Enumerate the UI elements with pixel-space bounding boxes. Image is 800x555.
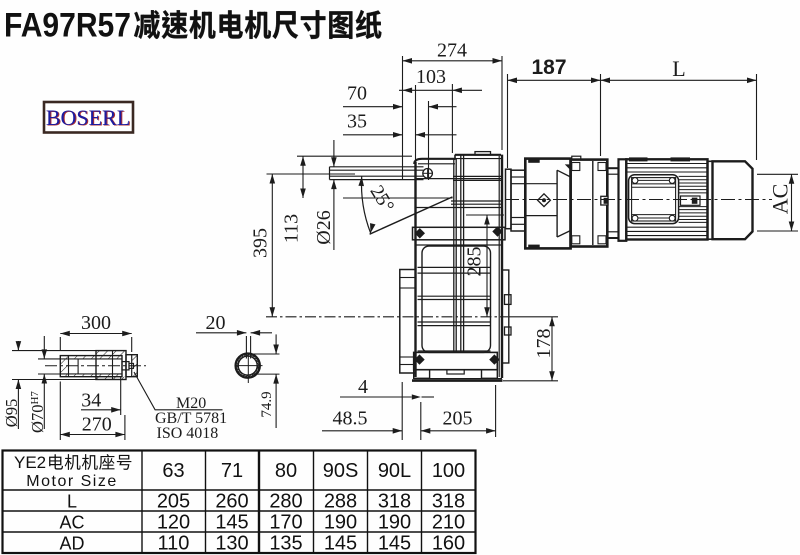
- svg-text:L: L: [67, 492, 77, 512]
- svg-text:35: 35: [347, 111, 367, 133]
- svg-text:190: 190: [378, 512, 411, 534]
- svg-text:YE2: YE2: [14, 453, 46, 472]
- svg-text:205: 205: [157, 491, 190, 513]
- svg-text:300: 300: [81, 312, 111, 334]
- svg-text:AC: AC: [768, 184, 793, 215]
- svg-text:34: 34: [81, 390, 101, 412]
- svg-text:285: 285: [464, 247, 486, 277]
- svg-text:103: 103: [416, 66, 446, 88]
- svg-text:260: 260: [215, 491, 248, 513]
- svg-text:110: 110: [158, 533, 190, 555]
- svg-text:48.5: 48.5: [333, 408, 368, 430]
- svg-text:120: 120: [157, 512, 190, 534]
- svg-text:L: L: [672, 56, 685, 81]
- svg-text:178: 178: [533, 329, 555, 359]
- svg-text:Ø95: Ø95: [2, 399, 21, 427]
- svg-text:280: 280: [269, 491, 302, 513]
- svg-text:274: 274: [437, 40, 467, 62]
- svg-text:130: 130: [215, 533, 248, 555]
- svg-text:145: 145: [324, 533, 357, 555]
- svg-text:4: 4: [358, 376, 368, 398]
- svg-text:Motor Size: Motor Size: [26, 473, 117, 490]
- svg-text:BOSERL: BOSERL: [46, 105, 130, 130]
- svg-text:90L: 90L: [378, 460, 411, 482]
- svg-text:100: 100: [432, 460, 465, 482]
- svg-text:190: 190: [324, 512, 357, 534]
- svg-text:135: 135: [269, 533, 302, 555]
- svg-text:395: 395: [250, 228, 272, 258]
- svg-text:318: 318: [432, 491, 465, 513]
- svg-text:187: 187: [531, 56, 566, 79]
- svg-text:113: 113: [281, 214, 303, 243]
- svg-text:90S: 90S: [323, 460, 359, 482]
- svg-text:AC: AC: [59, 513, 84, 533]
- svg-text:FA97R57: FA97R57: [4, 7, 131, 45]
- svg-text:20: 20: [206, 312, 226, 334]
- svg-text:318: 318: [378, 491, 411, 513]
- svg-text:145: 145: [215, 512, 248, 534]
- svg-text:71: 71: [221, 460, 243, 482]
- svg-text:Ø26: Ø26: [313, 210, 335, 244]
- svg-text:170: 170: [269, 512, 302, 534]
- svg-text:70: 70: [347, 83, 367, 105]
- svg-text:160: 160: [432, 533, 465, 555]
- svg-text:205: 205: [443, 408, 473, 430]
- svg-text:210: 210: [432, 512, 465, 534]
- svg-text:80: 80: [275, 460, 297, 482]
- svg-text:AD: AD: [59, 534, 84, 554]
- svg-text:145: 145: [378, 533, 411, 555]
- svg-text:74.9: 74.9: [259, 391, 275, 417]
- svg-text:63: 63: [162, 460, 184, 482]
- svg-text:288: 288: [324, 491, 357, 513]
- svg-text:270: 270: [82, 414, 112, 436]
- svg-text:ISO 4018: ISO 4018: [157, 425, 219, 442]
